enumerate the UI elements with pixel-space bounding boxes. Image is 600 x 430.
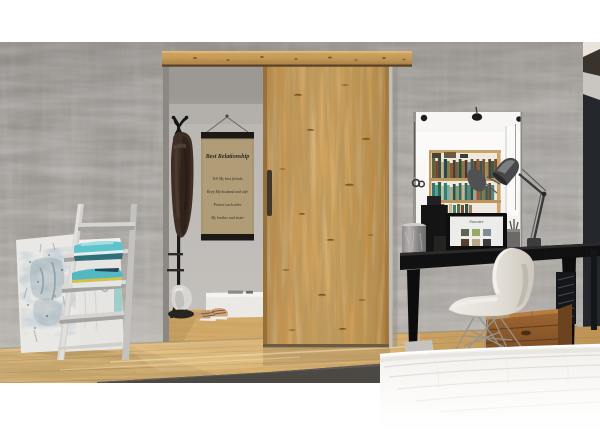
svg-text:Keep My husband and wife: Keep My husband and wife	[206, 190, 249, 194]
svg-text:Sweater: Sweater	[469, 219, 483, 224]
svg-text:Best Relationship: Best Relationship	[205, 154, 250, 160]
svg-text:Tell My best friends: Tell My best friends	[213, 177, 243, 181]
svg-text:Protect each other: Protect each other	[212, 203, 242, 207]
svg-text:My brother and sister: My brother and sister	[210, 216, 244, 220]
